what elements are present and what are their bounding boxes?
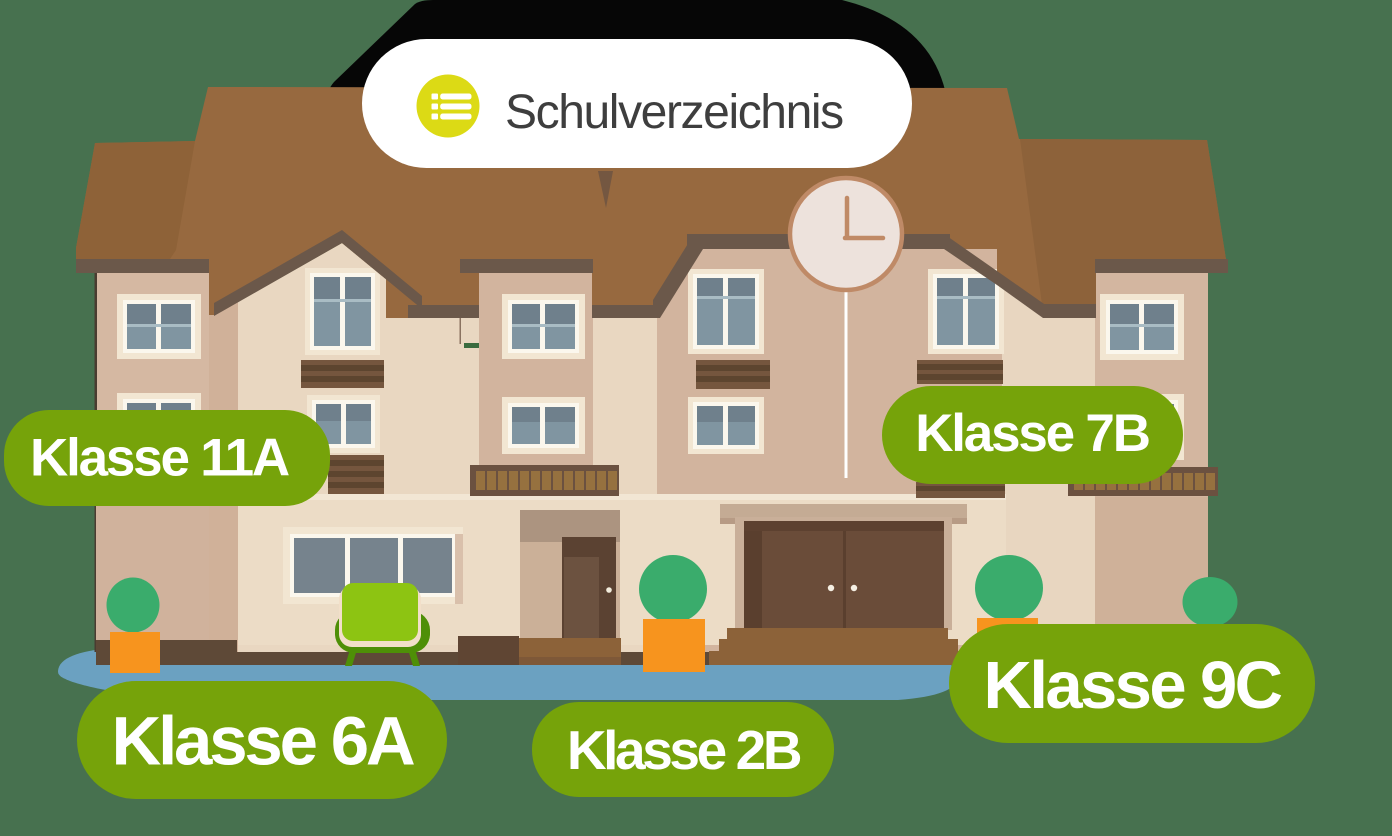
svg-text:Klasse 11A: Klasse 11A xyxy=(30,429,289,488)
svg-text:Klasse 6A: Klasse 6A xyxy=(111,703,414,780)
svg-text:Klasse 9C: Klasse 9C xyxy=(984,648,1282,723)
svg-text:Klasse 7B: Klasse 7B xyxy=(915,404,1149,463)
svg-text:Klasse 2B: Klasse 2B xyxy=(567,719,801,781)
svg-text:Schulverzeichnis: Schulverzeichnis xyxy=(505,86,843,139)
